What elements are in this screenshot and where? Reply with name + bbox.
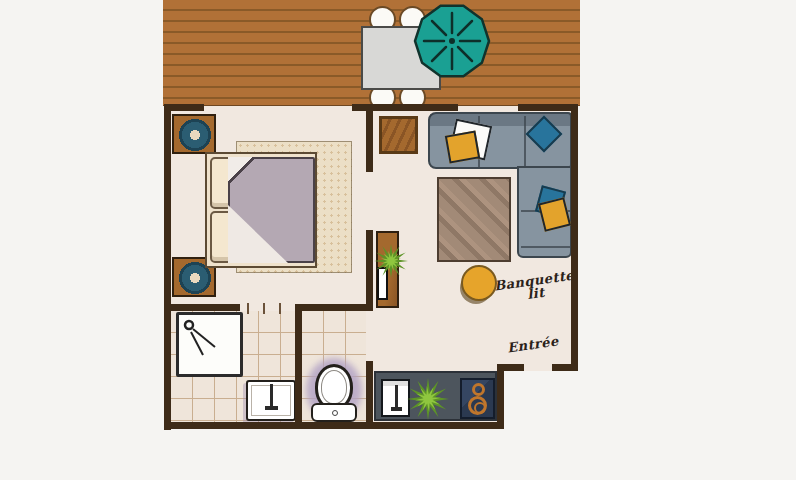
potted-plant-icon <box>374 244 408 278</box>
sofa-seam <box>521 246 570 248</box>
wall-bedroom-living-lower <box>366 230 373 311</box>
wall-wc-kitchen <box>366 361 373 429</box>
cushion-yellow-icon <box>445 131 480 164</box>
cooktop-icon <box>460 378 495 419</box>
basin-tap <box>270 384 273 406</box>
wall-wc-top <box>295 304 373 311</box>
double-bed-icon <box>205 152 317 268</box>
shower-head-icon <box>181 317 225 361</box>
living-rug-icon <box>437 177 511 262</box>
basin-tap-base <box>265 406 278 410</box>
wall-top-living <box>518 104 578 111</box>
shower-icon <box>176 312 243 377</box>
wall-entry-left <box>497 364 504 429</box>
duvet-fold-corner <box>228 157 254 183</box>
kitchen-tap <box>395 385 398 409</box>
wall-bedroom-living-upper <box>366 109 373 172</box>
toilet-flush-button <box>332 410 338 416</box>
doormat-icon <box>379 116 418 154</box>
washbasin-icon <box>246 380 296 421</box>
kitchen-sink-icon <box>381 379 410 417</box>
toilet-tank <box>311 403 357 422</box>
kitchen-tap-base <box>391 407 402 411</box>
wall-entry-jamb-left <box>497 364 524 371</box>
floor-plan: Banquette lit Entrée <box>0 0 796 480</box>
wall-bathroom-top-left <box>164 304 240 311</box>
bathroom-door-tick <box>263 303 265 314</box>
wall-right <box>571 104 578 371</box>
entry-outside-area <box>504 371 574 425</box>
duvet-icon <box>228 157 315 263</box>
folded-sheet <box>228 205 288 263</box>
deck-terrace <box>163 0 580 106</box>
wall-bottom <box>164 422 504 429</box>
wall-bathroom-wc <box>295 304 302 429</box>
bathroom-door-tick <box>279 303 281 314</box>
sofa-seam <box>524 116 526 167</box>
burner-icon <box>472 383 485 396</box>
wall-entry-jamb-right <box>552 364 578 371</box>
wall-left <box>164 104 171 430</box>
speaker-icon <box>178 118 212 152</box>
potted-plant-icon <box>407 378 449 420</box>
wall-top-bedroom <box>164 104 204 111</box>
bathroom-door-tick <box>247 303 249 314</box>
burner-icon <box>468 396 487 415</box>
nightstand-icon <box>172 114 216 154</box>
parasol-icon <box>412 1 492 81</box>
